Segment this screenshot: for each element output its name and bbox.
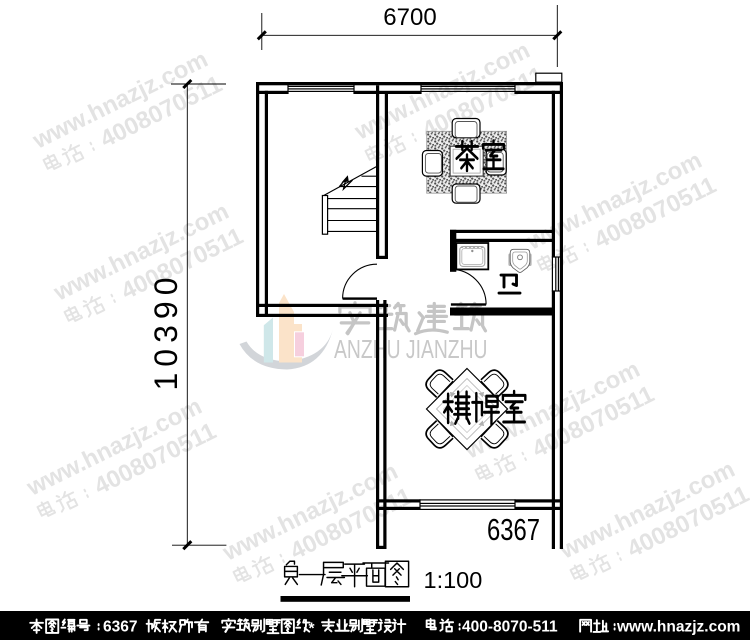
svg-text:6367: 6367 (103, 619, 137, 636)
svg-text:400-8070-511: 400-8070-511 (462, 619, 558, 636)
svg-text:www.hnazjz.com: www.hnazjz.com (616, 619, 740, 636)
svg-text:6367: 6367 (487, 512, 540, 547)
svg-text:1:100: 1:100 (424, 567, 483, 593)
svg-text:ANZHU JIANZHU: ANZHU JIANZHU (334, 336, 488, 364)
svg-text:10390: 10390 (148, 272, 184, 391)
svg-text:6700: 6700 (383, 4, 436, 31)
